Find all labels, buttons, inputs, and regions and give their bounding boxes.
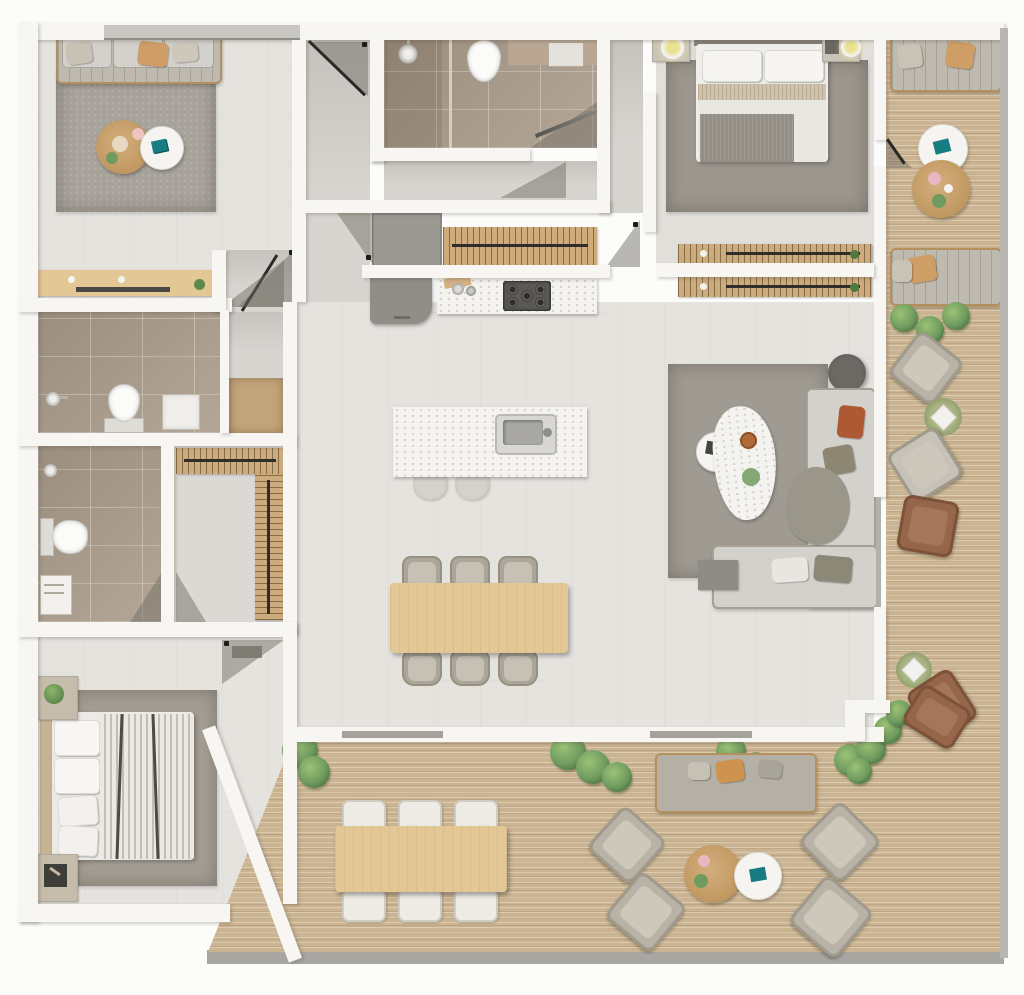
wall-hall-bottom <box>305 200 610 213</box>
wall-balcony-4 <box>874 607 886 707</box>
floor-plan <box>0 0 1024 995</box>
wall-balcony-3 <box>874 277 886 497</box>
window-sitting-room <box>104 25 300 40</box>
wall-leftwing-right <box>283 302 297 633</box>
sliding-door-living <box>876 497 881 607</box>
walls <box>0 0 1024 995</box>
wall-balcony-1 <box>874 40 886 140</box>
balcony-railing <box>1000 28 1008 958</box>
wall-bottom-left <box>18 904 230 922</box>
wall-left <box>18 22 38 922</box>
wall-step-1 <box>845 700 890 713</box>
wall-sitting-bottom <box>18 298 232 312</box>
wall-wardrobe-divider <box>656 263 874 277</box>
wall-bedroom2-right <box>283 622 297 904</box>
wall-bath2-niche <box>220 310 229 433</box>
wall-bathroom-bottom <box>370 148 530 161</box>
wall-sitting-corner <box>212 250 226 312</box>
wall-kitchen-back <box>362 265 610 278</box>
wall-step-2 <box>845 713 865 741</box>
wall-bath2-bottom <box>18 433 296 446</box>
wall-bathroom-left <box>370 40 384 162</box>
wall-hall-bedroom <box>643 92 656 232</box>
wall-corridor-left <box>292 40 306 302</box>
wall-bedroom2-top <box>18 622 296 637</box>
sliding-track-east <box>650 731 752 738</box>
sliding-track-west <box>342 731 443 738</box>
wall-bath3-closet <box>161 446 174 622</box>
wall-bathroom-right <box>597 40 610 213</box>
wall-balcony-2 <box>874 166 886 277</box>
